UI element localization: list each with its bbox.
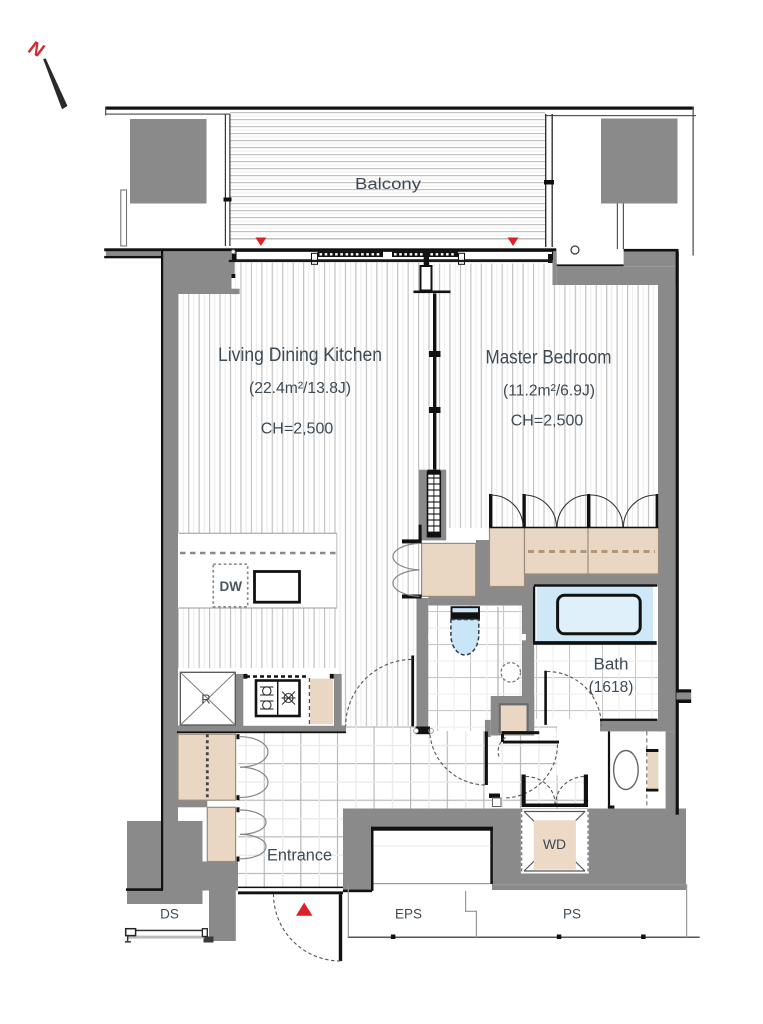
svg-text:R: R xyxy=(201,692,210,707)
svg-text:Master Bedroom: Master Bedroom xyxy=(486,348,612,369)
svg-text:(1618): (1618) xyxy=(589,679,634,696)
svg-text:(22.4m²/13.8J): (22.4m²/13.8J) xyxy=(249,380,351,397)
svg-text:PS: PS xyxy=(563,907,581,922)
svg-text:EPS: EPS xyxy=(395,907,422,922)
svg-text:Living Dining Kitchen: Living Dining Kitchen xyxy=(218,345,382,366)
svg-text:WD: WD xyxy=(543,836,566,852)
svg-text:DW: DW xyxy=(220,579,243,594)
svg-text:Bath: Bath xyxy=(594,655,629,674)
svg-text:CH=2,500: CH=2,500 xyxy=(511,413,584,430)
svg-text:CH=2,500: CH=2,500 xyxy=(261,421,334,438)
svg-text:(11.2m²/6.9J): (11.2m²/6.9J) xyxy=(503,383,595,400)
svg-text:Entrance: Entrance xyxy=(267,847,332,865)
svg-text:DS: DS xyxy=(160,907,179,922)
svg-text:Balcony: Balcony xyxy=(355,176,421,193)
